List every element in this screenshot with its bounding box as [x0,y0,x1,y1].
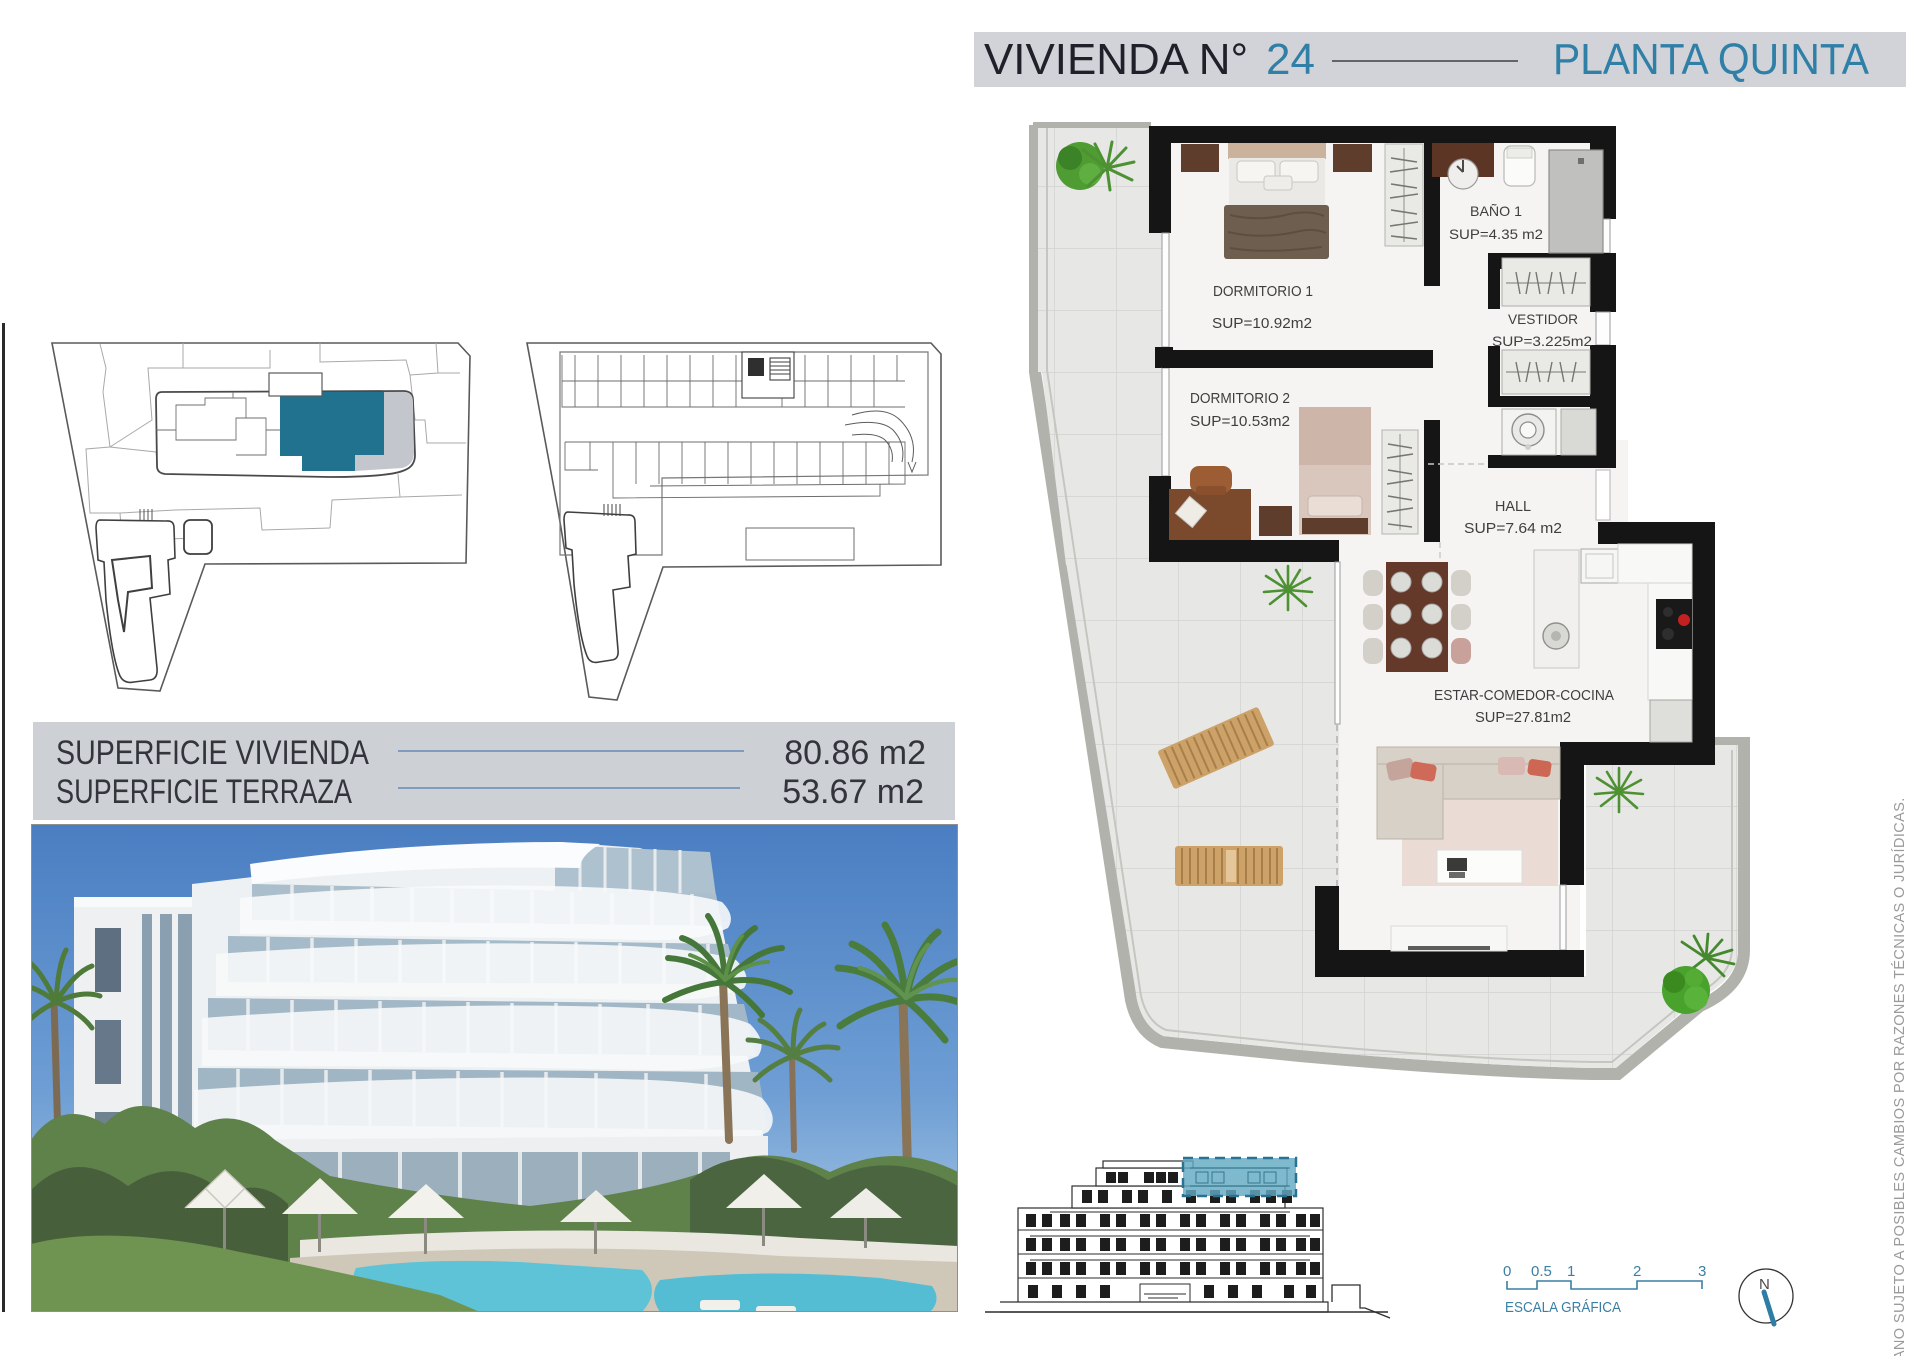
svg-text:0: 0 [1503,1263,1511,1280]
svg-text:DORMITORIO 2: DORMITORIO 2 [1190,391,1290,407]
svg-text:DORMITORIO 1: DORMITORIO 1 [1213,284,1313,300]
svg-text:ESTAR-COMEDOR-COCINA: ESTAR-COMEDOR-COCINA [1434,688,1614,704]
svg-text:PLANTA QUINTA: PLANTA QUINTA [1553,35,1870,84]
svg-text:1: 1 [1567,1263,1575,1280]
svg-text:SUP=4.35 m2: SUP=4.35 m2 [1449,226,1543,242]
svg-text:SUPERFICIE TERRAZA: SUPERFICIE TERRAZA [56,773,352,811]
svg-text:SUP=7.64 m2: SUP=7.64 m2 [1464,521,1562,537]
svg-text:BAÑO 1: BAÑO 1 [1470,203,1522,219]
svg-text:SUP=27.81m2: SUP=27.81m2 [1475,710,1571,726]
svg-text:0.5: 0.5 [1531,1263,1552,1280]
svg-text:HALL: HALL [1495,499,1531,515]
svg-text:ESCALA GRÁFICA: ESCALA GRÁFICA [1505,1299,1621,1316]
svg-text:SUPERFICIE VIVIENDA: SUPERFICIE VIVIENDA [56,734,369,772]
svg-text:80.86 m2: 80.86 m2 [784,734,926,772]
svg-text:PLANO SUJETO A POSIBLES CAMBIO: PLANO SUJETO A POSIBLES CAMBIOS POR RAZO… [1891,797,1908,1356]
svg-text:53.67 m2: 53.67 m2 [782,773,924,811]
svg-text:VESTIDOR: VESTIDOR [1508,311,1578,327]
svg-text:2: 2 [1633,1263,1641,1280]
svg-text:SUP=10.53m2: SUP=10.53m2 [1190,414,1290,430]
svg-text:3: 3 [1698,1263,1706,1280]
svg-text:SUP=10.92m2: SUP=10.92m2 [1212,316,1312,332]
svg-text:24: 24 [1266,35,1315,84]
svg-text:SUP=3.225m2: SUP=3.225m2 [1492,333,1592,349]
svg-text:VIVIENDA N°: VIVIENDA N° [984,35,1248,84]
